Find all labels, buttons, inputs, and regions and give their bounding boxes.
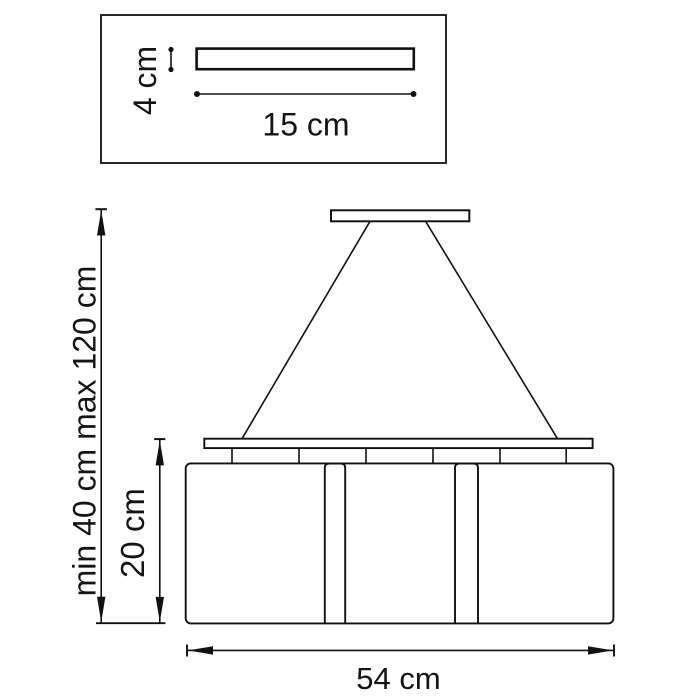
svg-text:54 cm: 54 cm bbox=[356, 661, 440, 696]
svg-text:min 40 cm max 120 cm: min 40 cm max 120 cm bbox=[67, 266, 103, 597]
svg-text:20 cm: 20 cm bbox=[114, 488, 151, 578]
svg-text:15 cm: 15 cm bbox=[262, 107, 349, 143]
svg-text:4 cm: 4 cm bbox=[127, 46, 163, 115]
